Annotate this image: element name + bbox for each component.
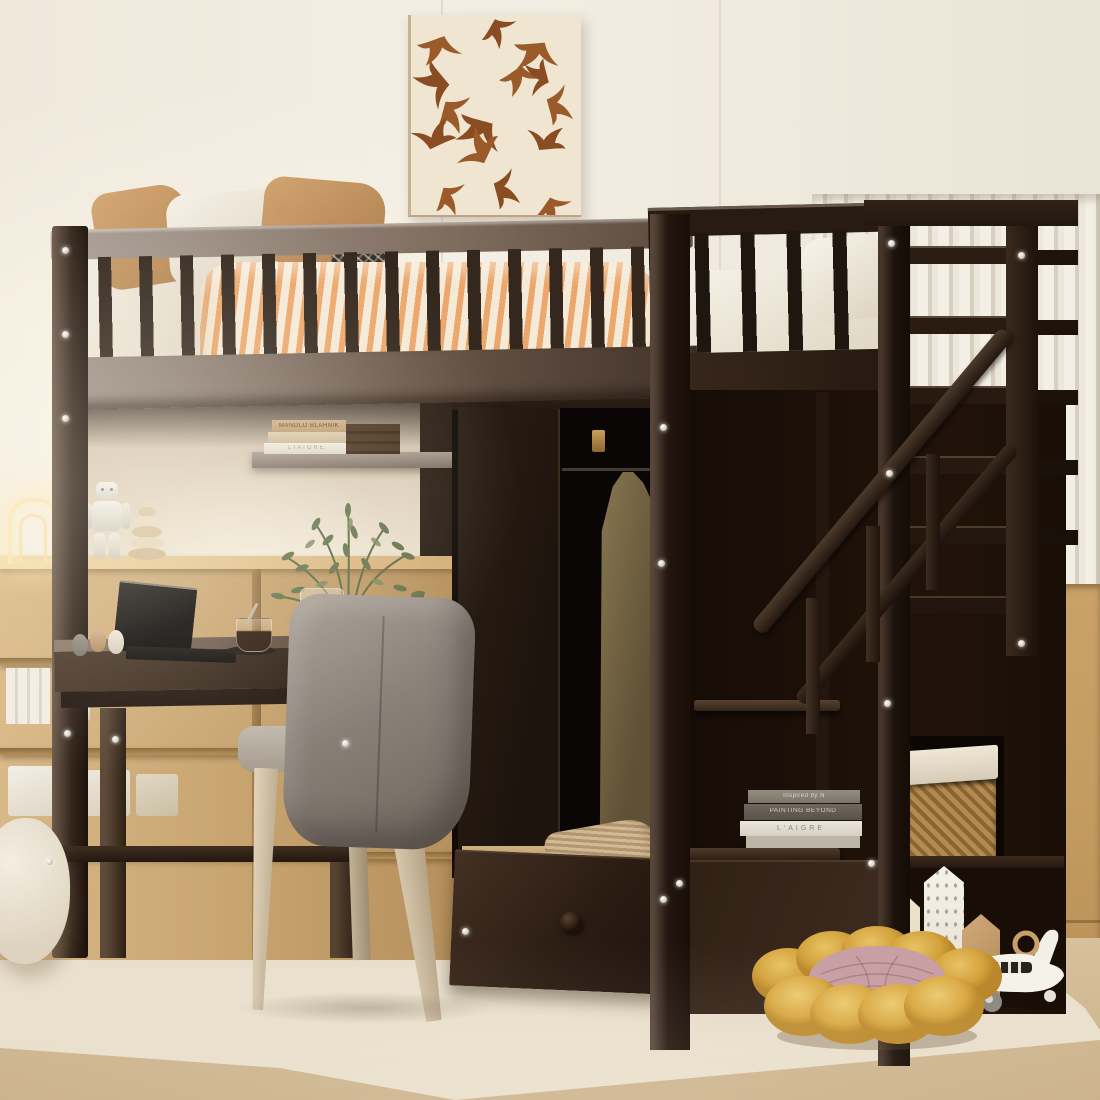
wheel (1044, 990, 1056, 1002)
ladder-rung (906, 246, 1010, 264)
robot-figurine (84, 482, 130, 560)
handrail-baluster (806, 598, 820, 734)
book-stack-dark (346, 424, 400, 454)
robot-head (96, 482, 118, 499)
egg-decor (72, 634, 88, 656)
screw-cap (676, 880, 683, 887)
desk-leg (100, 708, 126, 958)
screw-cap (64, 730, 71, 737)
egg-decor (108, 630, 124, 654)
closet-rod (562, 468, 660, 471)
book-title: L'AIGRE (740, 825, 862, 832)
book-title: PAINTING BEYOND (744, 808, 862, 815)
ladder-rung-stub (1038, 320, 1078, 335)
book-title: MANOLO BLAHNIK (272, 423, 346, 429)
chair-shadow (236, 992, 496, 1024)
stacking-toy (128, 498, 166, 560)
storage-drawer-front (449, 849, 669, 994)
wicker-basket (906, 778, 996, 858)
wall-art (408, 15, 581, 217)
ladder-rung-stub (1038, 530, 1078, 545)
brass-hinge (592, 430, 605, 452)
screw-cap (1018, 252, 1025, 259)
desk-stretcher (58, 846, 360, 862)
screw-cap (886, 470, 893, 477)
bird-pattern-illustration (411, 15, 581, 215)
screw-cap (660, 896, 667, 903)
screw-cap (1018, 640, 1025, 647)
stacking-ring (128, 548, 166, 560)
screw-cap (660, 424, 667, 431)
ladder-rung-stub (1038, 250, 1078, 265)
ladder-rung (906, 526, 1010, 544)
room-scene: MANOLO BLAHNIK LIAIGRE (0, 0, 1100, 1100)
basket-linen-liner (904, 745, 998, 786)
flower-floor-cushion (746, 912, 1008, 1054)
screw-cap (112, 736, 119, 743)
screw-cap (62, 415, 69, 422)
book-title: Inspired by N (748, 793, 860, 799)
screw-cap (884, 700, 891, 707)
egg-decor (90, 628, 106, 652)
ladder-rung-stub (1038, 390, 1078, 405)
ladder-rung (906, 596, 1010, 614)
book-title: LIAIGRE (264, 445, 350, 451)
guard-rail-slats (57, 246, 695, 360)
screw-cap (46, 858, 53, 865)
book-spine: L'AIGRE (740, 821, 862, 836)
ladder-stile (1006, 214, 1038, 656)
arch-lamp-inner (19, 514, 47, 563)
robot-leg (94, 533, 105, 559)
handrail-baluster (866, 526, 880, 662)
ladder-rung-stub (1038, 460, 1078, 475)
drawer-knob (560, 912, 582, 933)
ladder-rung (906, 316, 1010, 334)
robot-eye (110, 488, 113, 491)
screw-cap (462, 928, 469, 935)
storage-box (136, 774, 178, 816)
screw-cap (658, 560, 665, 567)
robot-eye (101, 488, 104, 491)
cubby-shelf-board (884, 856, 1064, 868)
robot-leg (109, 533, 120, 559)
robot-torso (92, 501, 122, 531)
white-book-stack (6, 668, 50, 724)
chair-back (282, 593, 477, 851)
bed-post-mid (650, 214, 690, 1050)
book-spine: MANOLO BLAHNIK (272, 420, 346, 432)
chair-stitch-line (375, 616, 385, 833)
book-spine: Inspired by N (748, 790, 860, 803)
screw-cap (62, 247, 69, 254)
screw-cap (342, 740, 349, 747)
book-spine (268, 432, 348, 443)
screw-cap (868, 860, 875, 867)
book-spine: LIAIGRE (264, 443, 350, 454)
book-spine: PAINTING BEYOND (744, 804, 862, 820)
screw-cap (62, 331, 69, 338)
handrail-baluster (926, 454, 940, 590)
screw-cap (888, 240, 895, 247)
wall-shelf (252, 452, 470, 468)
book-spine (746, 836, 860, 848)
top-rail-right (864, 200, 1078, 226)
